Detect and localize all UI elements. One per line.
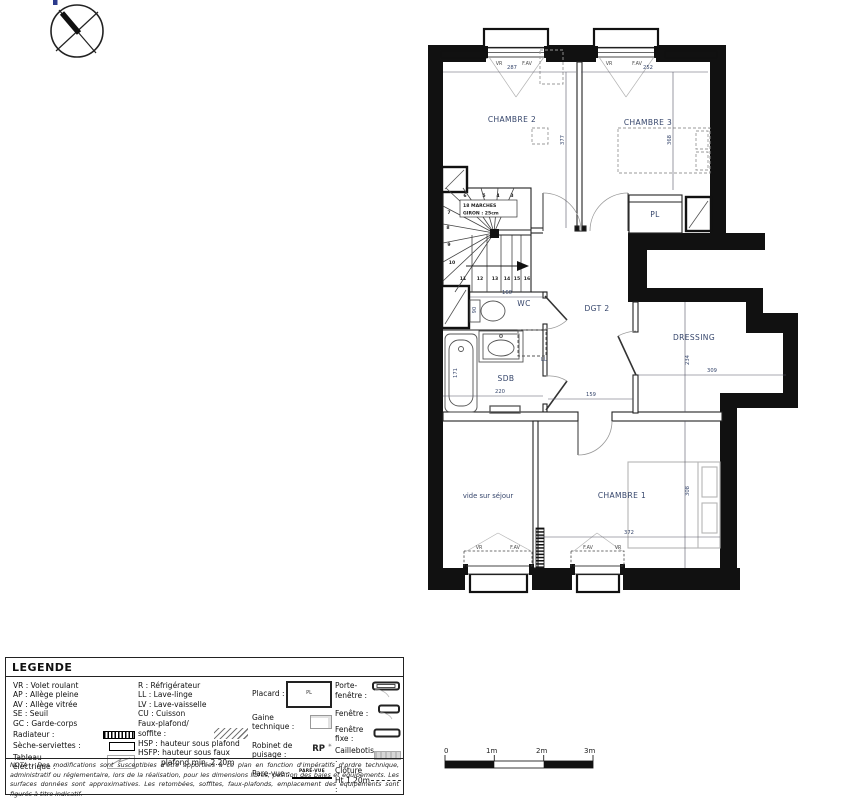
legend-item-french-window: Porte-fenêtre :	[335, 681, 401, 700]
window-chambre3	[594, 29, 658, 48]
radiator-icon	[536, 528, 544, 568]
legend-item: HSFP: hauteur sous faux	[138, 748, 248, 757]
stair-step-number: 8	[446, 225, 449, 231]
technical-duct-icon	[310, 715, 332, 729]
dim-label: 309	[707, 368, 717, 374]
french-window-icon	[371, 681, 401, 700]
legend-item: LV : Lave-vaisselle	[138, 700, 248, 709]
radiator-icon	[665, 51, 717, 58]
vr-label: VR	[476, 545, 483, 551]
water-tap-icon: RP✳	[312, 745, 332, 754]
stair-step-number: 5	[482, 193, 485, 199]
scale-tick-label: 2m	[536, 747, 547, 755]
window-icon	[375, 704, 401, 722]
room-label-chambre1: CHAMBRE 1	[598, 491, 646, 500]
legend-item: LL : Lave-linge	[138, 690, 248, 699]
room-label-wc: WC	[517, 299, 530, 308]
stair-step-number: 10	[449, 260, 455, 266]
dim-label: 160	[502, 290, 512, 296]
legend-item: GC : Garde-corps	[13, 719, 135, 728]
legend-item: CU : Cuisson	[138, 709, 248, 718]
fav-label: F.AV	[510, 545, 520, 551]
soffit-hatch-icon	[214, 728, 248, 739]
fav-label: F.AV	[632, 61, 642, 67]
vr-label: VR	[615, 545, 622, 551]
room-label-sdb: SDB	[498, 374, 515, 383]
legend-item: HSP : hauteur sous plafond	[138, 739, 248, 748]
window-chambre2	[484, 29, 548, 48]
vr-label: VR	[606, 61, 613, 67]
dim-label: 368	[667, 135, 673, 145]
dim-label: 377	[560, 135, 566, 145]
legend-item-placard: Placard : PL	[252, 681, 332, 707]
legend-panel: LEGENDE VR : Volet roulant AP : Allège p…	[5, 657, 404, 795]
legend-item: Faux-plafond/	[138, 719, 248, 728]
legend-title: LEGENDE	[12, 661, 72, 674]
towel-dryer-icon	[109, 742, 135, 751]
washing-machine-slot	[518, 330, 546, 356]
stair-step-number: 7	[447, 210, 450, 216]
ll-label: LL	[541, 357, 547, 363]
scale-tick-label: 3m	[584, 747, 595, 755]
room-label-dressing: DRESSING	[673, 333, 715, 342]
dim-label: 171	[453, 368, 459, 378]
washbasin-icon	[479, 331, 523, 362]
windows	[463, 29, 659, 592]
dim-label: 220	[495, 389, 505, 395]
dim-label: 159	[586, 392, 596, 398]
scale-bar: 0 1m 2m 3m	[444, 747, 595, 768]
dim-label: 90	[472, 307, 478, 314]
compass-icon	[51, 0, 103, 57]
scale-tick-label: 0	[444, 747, 448, 755]
vr-label: VR	[496, 61, 503, 67]
dim-label: 252	[643, 65, 653, 71]
legend-item: VR : Volet roulant	[13, 681, 135, 690]
room-label-chambre3: CHAMBRE 3	[624, 118, 672, 127]
room-label-chambre2: CHAMBRE 2	[488, 115, 536, 124]
fixed-window-icon	[373, 728, 401, 741]
fav-label: F.AV	[583, 545, 593, 551]
legend-item-duct: Gainetechnique :	[252, 711, 332, 733]
scale-tick-label: 1m	[486, 747, 497, 755]
legend-item: AV : Allège vitrée	[13, 700, 135, 709]
legend-separator	[6, 676, 403, 677]
stair-step-number: 16	[524, 276, 530, 282]
room-labels: CHAMBRE 2 CHAMBRE 3 PL DGT 2 DRESSING WC…	[463, 115, 715, 500]
stair-step-number: 6	[463, 193, 466, 199]
radiator-icon	[441, 51, 487, 58]
legend-item-fixed-window: Fenêtre fixe :	[335, 725, 401, 744]
stair-marches-label: 18 MARCHES	[463, 203, 496, 209]
legend-item-window: Fenêtre :	[335, 704, 401, 722]
legend-item: SE : Seuil	[13, 709, 135, 718]
legend-item: AP : Allège pleine	[13, 690, 135, 699]
radiator-icon	[103, 731, 135, 739]
legend-item-soffit: soffite :	[138, 728, 248, 739]
legend-item: R : Réfrigérateur	[138, 681, 248, 690]
stair-step-number: 11	[460, 276, 466, 282]
stair-giron-label: GIRON : 25cm	[463, 211, 499, 217]
legend-column-appliances: R : Réfrigérateur LL : Lave-linge LV : L…	[138, 681, 248, 767]
dim-label: 234	[685, 354, 691, 365]
stair-step-number: 4	[496, 193, 499, 199]
stair-step-number: 13	[492, 276, 498, 282]
placard-icon: PL	[286, 681, 332, 708]
dim-label: 287	[507, 65, 517, 71]
room-label-vide: vide sur séjour	[463, 492, 513, 500]
room-label-pl: PL	[650, 210, 660, 219]
stair-step-number: 14	[504, 276, 510, 282]
dim-label: 372	[624, 530, 634, 536]
bed-outline	[628, 462, 720, 548]
floor-plan-page: 18 MARCHES GIRON : 25cm 3 4 5 6 7 8 9 10…	[0, 0, 860, 800]
stair-step-number: 9	[447, 242, 450, 248]
fav-label: F.AV	[522, 61, 532, 67]
stair-step-number: 3	[510, 193, 513, 199]
window-chambre1	[577, 574, 619, 592]
furniture-outline	[532, 128, 548, 144]
legend-item-towel-dryer: Sèche-serviettes :	[13, 741, 135, 750]
window-vide	[470, 574, 527, 592]
stair-step-number: 12	[477, 276, 483, 282]
room-label-dgt2: DGT 2	[584, 304, 609, 313]
nota-text: NOTA : Des modifications sont susceptibl…	[6, 758, 403, 794]
dim-label: 308	[685, 486, 691, 496]
stair-step-number: 15	[514, 276, 520, 282]
legend-item-radiator: Radiateur :	[13, 730, 135, 739]
